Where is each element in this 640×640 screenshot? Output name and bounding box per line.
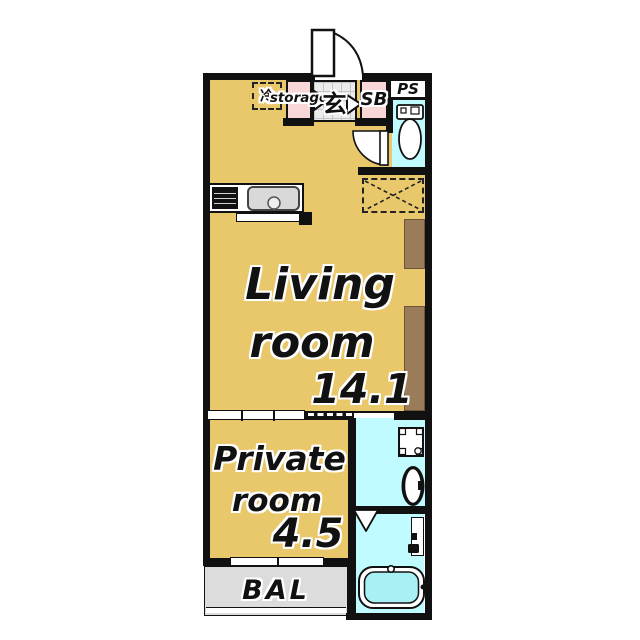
toilet-tank-button bbox=[401, 108, 406, 113]
entrance-door-leaf bbox=[312, 30, 334, 76]
living-room-label-line2: room bbox=[222, 318, 402, 368]
living-room-label-line1: Living bbox=[230, 258, 410, 310]
kitchen-sink-drain bbox=[268, 197, 280, 209]
bathtub-inner bbox=[365, 572, 419, 603]
floor-plan: 冷 storage 玄 SB PS Living room 14.1 Priva… bbox=[0, 0, 640, 640]
toilet-door-leaf bbox=[380, 131, 388, 165]
private-room-size: 4.5 bbox=[240, 512, 376, 556]
washbasin-faucet bbox=[418, 481, 424, 490]
balcony-label: BAL bbox=[204, 572, 348, 608]
genkan-label: 玄 bbox=[312, 80, 357, 122]
bathtub-faucet bbox=[388, 566, 394, 572]
shower-mixer bbox=[408, 544, 419, 553]
washer-pan-corner-1 bbox=[400, 429, 406, 435]
washer-pan-drain bbox=[415, 448, 421, 454]
bathtub-drain-dot bbox=[421, 585, 426, 590]
toilet-bowl bbox=[399, 119, 421, 159]
private-room-label-line1: Private bbox=[212, 438, 347, 478]
living-room-size: 14.1 bbox=[282, 366, 442, 412]
washer-pan-corner-2 bbox=[417, 429, 423, 435]
washer-pan-corner-3 bbox=[400, 449, 406, 455]
entrance-door-arc bbox=[334, 33, 363, 75]
vanity-detail bbox=[411, 533, 417, 540]
toilet-tank-lid bbox=[411, 107, 419, 114]
pipe-space-label: PS bbox=[388, 78, 428, 100]
